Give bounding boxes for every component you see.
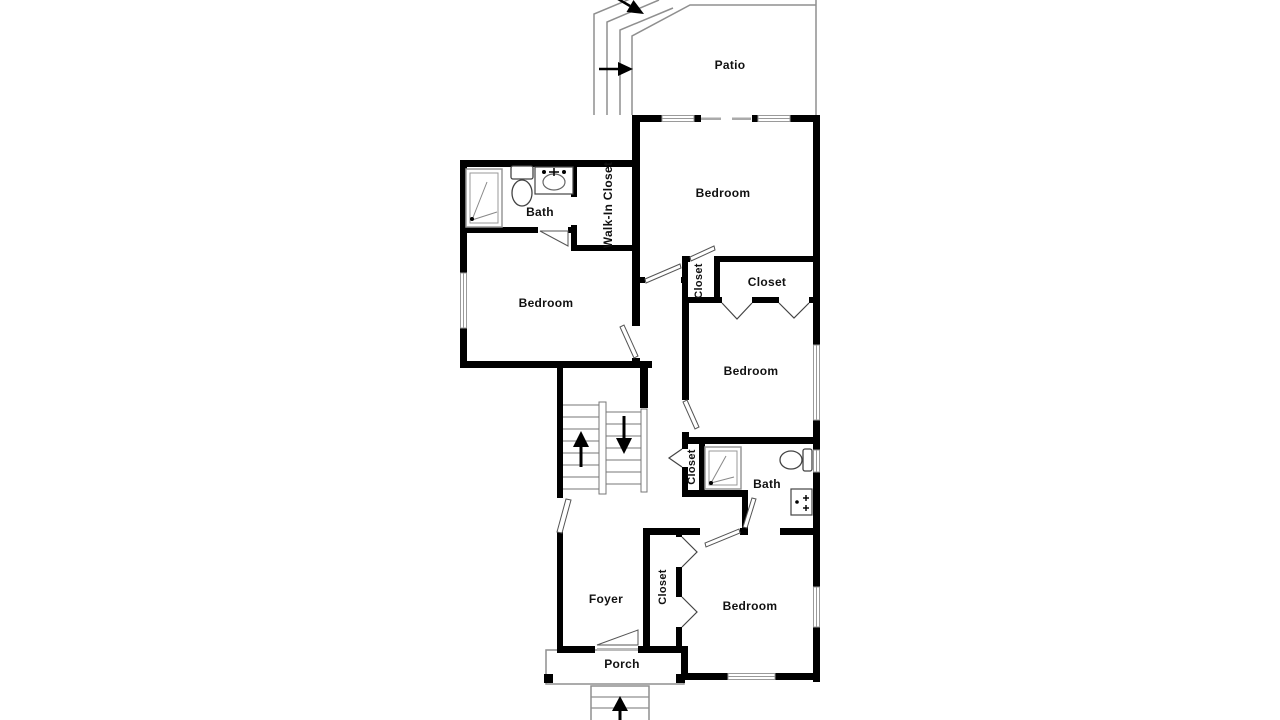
room-label-bath-upper: Bath	[526, 205, 554, 219]
bedroom-middle-door	[683, 400, 699, 429]
room-label-closet-hall: Closet	[686, 449, 698, 484]
vanity-sink-icon	[791, 489, 812, 515]
foyer-door	[557, 499, 571, 533]
shower-icon	[705, 447, 741, 489]
room-label-closet-small-top: Closet	[693, 263, 705, 298]
room-label-patio: Patio	[715, 58, 746, 72]
closet-top-bifold-left	[722, 303, 752, 319]
closet-bottom-bifold-2	[682, 597, 697, 627]
toilet-icon	[511, 166, 533, 206]
room-label-closet-top: Closet	[748, 275, 786, 289]
closet-small-top-door	[690, 246, 715, 261]
front-steps	[591, 686, 649, 720]
room-label-foyer: Foyer	[589, 592, 623, 606]
room-label-bedroom-top: Bedroom	[696, 186, 751, 200]
patio-outline	[594, 0, 816, 115]
bedroom-left-door	[620, 325, 638, 358]
patio-arrow-right-icon	[599, 62, 633, 76]
bath-upper-fixtures	[466, 166, 573, 227]
floor-plan: Patio Bedroom Bath Walk-In Closet Bedroo…	[0, 0, 1280, 720]
closet-bottom-bifold-1	[682, 537, 697, 567]
shower-icon	[466, 169, 502, 227]
patio-sliding-opening	[701, 118, 751, 121]
room-label-bath-lower: Bath	[753, 477, 781, 491]
room-label-bedroom-middle: Bedroom	[724, 364, 779, 378]
stairs-up-arrow-icon	[573, 431, 589, 467]
closet-top-bifold-right	[779, 303, 809, 318]
front-door	[597, 630, 638, 645]
bedroom-bottom-door	[705, 529, 740, 547]
room-label-bedroom-bottom: Bedroom	[723, 599, 778, 613]
patio-arrow-diagonal-icon	[613, 0, 644, 14]
room-label-closet-bottom: Closet	[657, 569, 669, 604]
room-label-porch: Porch	[604, 657, 640, 671]
room-label-walk-in-closet: Walk-In Closet	[601, 162, 615, 248]
bedroom-top-door	[645, 264, 681, 283]
toilet-icon	[780, 449, 812, 471]
staircase	[563, 402, 647, 494]
bath-upper-door	[540, 231, 568, 246]
sink-icon	[535, 167, 573, 194]
room-label-bedroom-left: Bedroom	[519, 296, 574, 310]
front-steps-up-arrow-icon	[612, 696, 628, 720]
floorplan-drawing	[0, 0, 1280, 720]
closet-hall-bifold	[669, 449, 682, 467]
